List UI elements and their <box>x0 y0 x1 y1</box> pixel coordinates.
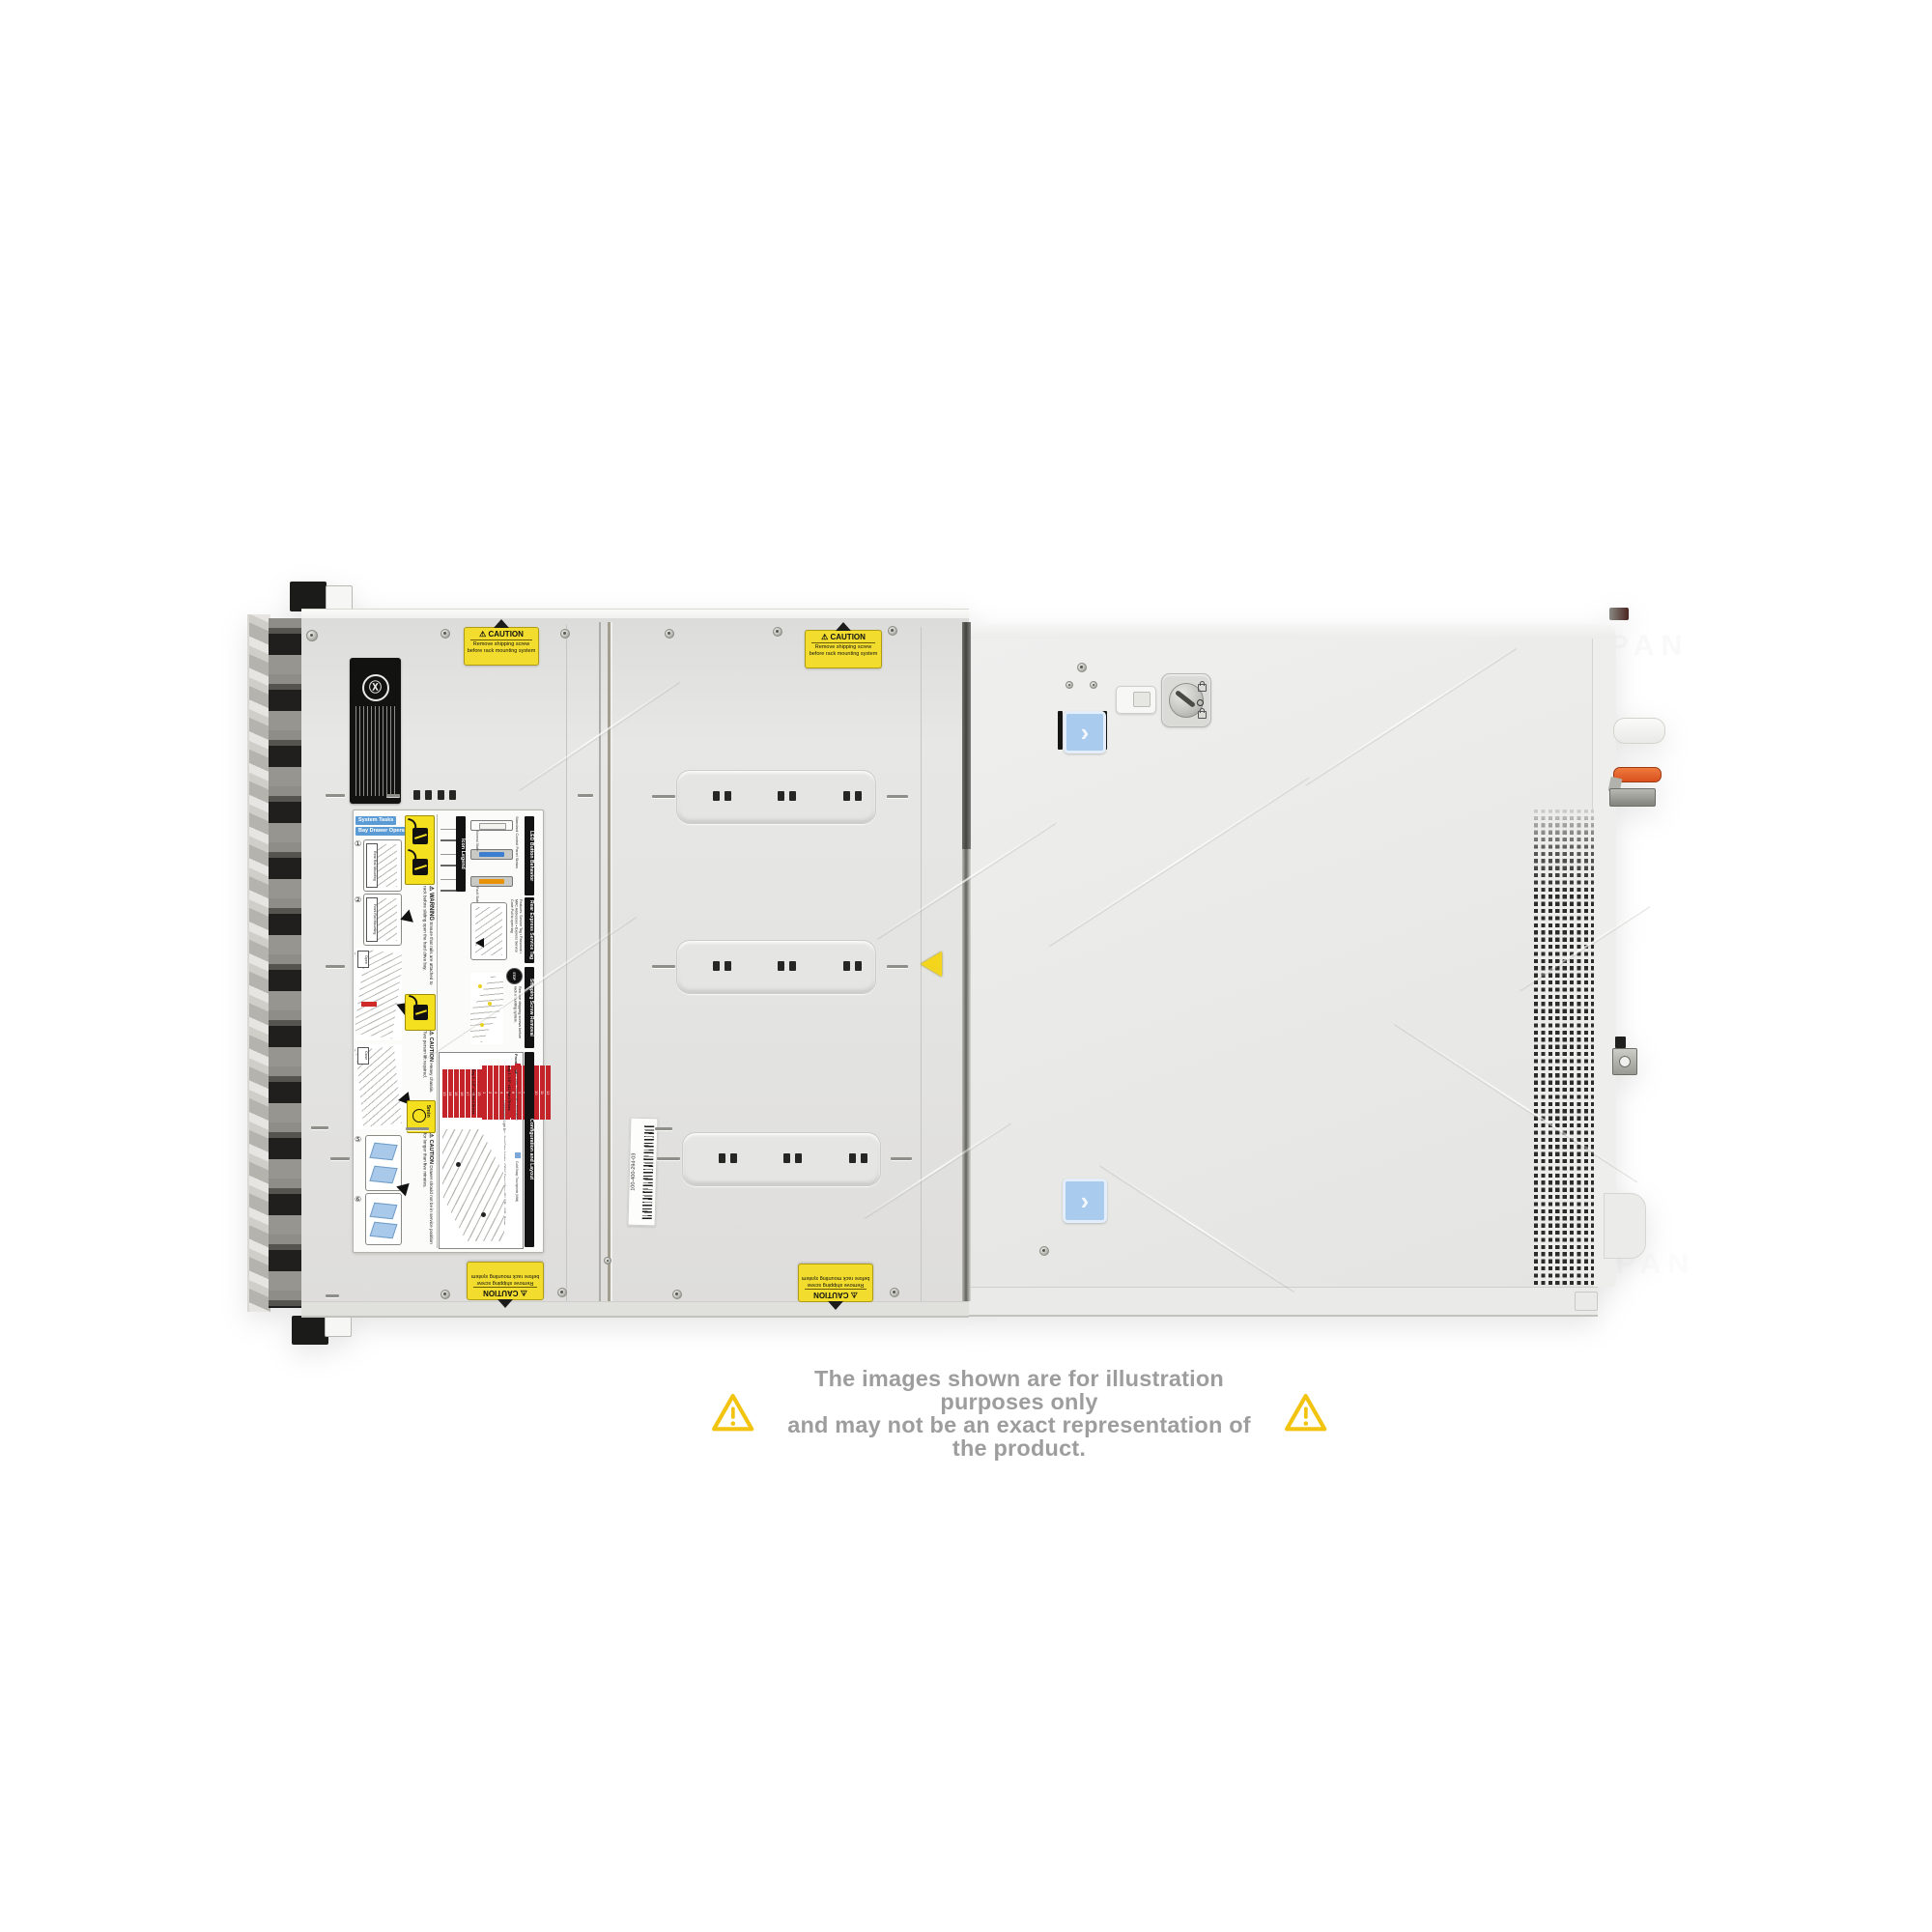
vent-slot-pair <box>413 790 432 800</box>
config-iso-drawing <box>442 1129 504 1241</box>
disclaimer-line-1: The images shown are for illustration pu… <box>773 1367 1264 1413</box>
warning-triangle-icon <box>1283 1387 1328 1439</box>
drive-bay-cell: 10 <box>534 1065 539 1120</box>
config-legend: Hot Swap Touchpoints (Immediate) Cold Sw… <box>514 1064 523 1243</box>
panel-dash-mark <box>657 1157 680 1160</box>
tag-close: Close <box>357 1047 369 1065</box>
led-fault-label: Fault State <box>475 887 479 903</box>
panel-dash-mark <box>887 795 908 798</box>
vent-slot-pair <box>849 1153 867 1163</box>
cover-bottom-fascia <box>969 1287 1598 1317</box>
tag-rear-rail: Rear Rail Mounting <box>366 843 378 888</box>
server-top-view: Ⓧ ⚠ CAUTION Remove shipping screw before… <box>241 575 1671 1357</box>
panel-dash-mark <box>326 965 345 968</box>
screw-dot <box>478 984 482 988</box>
led-header: LED Button Behavior <box>525 816 534 895</box>
illus-slide-open: Open <box>355 948 402 1040</box>
rear-vent-fade <box>1534 810 1594 1285</box>
five-min-text: 5min <box>425 1105 431 1118</box>
disclaimer-line-2: and may not be an exact representation o… <box>773 1413 1264 1460</box>
step-2: ② <box>355 895 361 904</box>
caution-line1: Remove shipping screw <box>806 644 881 651</box>
shipping-header: Shipping Screw Removal <box>525 967 534 1048</box>
stop-icon: STOP <box>506 968 523 984</box>
chevron-right-icon: › <box>1081 1186 1090 1216</box>
legend-hot-label: Hot Swap Touchpoints (Immediate) <box>515 1072 519 1121</box>
bay1-caption: Bay 1: 3.5" x12 Hard Drives <box>507 1065 511 1111</box>
caution-title: ⚠ CAUTION <box>805 1289 867 1299</box>
disclaimer-text: The images shown are for illustration pu… <box>773 1367 1264 1460</box>
vent-slot-pair <box>778 791 796 801</box>
caution-line1: Remove shipping screw <box>799 1282 872 1289</box>
panel-seam-2 <box>599 622 601 1301</box>
vent-slot-pair <box>719 1153 737 1163</box>
screw-hole <box>557 1288 567 1297</box>
caution-line2: before rack mounting system <box>468 1273 543 1280</box>
illus-front-rail: Front Rail Mounting <box>363 894 402 946</box>
caution-line1: Remove shipping screw <box>465 641 538 648</box>
pinch-hazard-icon <box>413 1005 428 1020</box>
rear-tag-illustration <box>470 902 507 960</box>
vent-slot-pair <box>778 961 796 971</box>
rear-vent-grid <box>1534 810 1594 1285</box>
bay2-caption: Bay 2: 3.5" x12 Hard Drives <box>471 1069 475 1115</box>
caution-line2: before rack mounting system <box>806 651 881 658</box>
unlock-icon <box>1198 684 1207 692</box>
icon-legend-header: Icon Legend <box>456 816 466 892</box>
panel-dash-mark <box>891 1157 912 1160</box>
touchpoint-dot <box>456 1162 461 1167</box>
panel-dash-mark <box>326 794 345 797</box>
led-bar-normal <box>470 820 513 831</box>
pinch-hazard-label-1 <box>405 815 435 885</box>
cover-release-touchpoint-2: › <box>1063 1179 1107 1223</box>
barcode-number: 100-400-294-03 <box>630 1119 642 1225</box>
cover-slider-latch <box>1116 686 1156 714</box>
drive-bay-cell: 11 <box>540 1065 545 1120</box>
legend-cold-swatch <box>515 1152 521 1158</box>
icon-legend-icons <box>440 816 456 892</box>
caution-sticker-bottom-middle: ⚠ CAUTION Remove shipping screw before r… <box>798 1264 873 1302</box>
rack-ear-top <box>290 582 327 611</box>
illus-blue-panel <box>370 1203 398 1220</box>
illus-blue-panel <box>369 1143 397 1161</box>
caution-title: ⚠ CAUTION <box>811 633 875 643</box>
bay2-drive-table: 131415161718192021222324 <box>442 1069 469 1118</box>
vent-slot-pair <box>713 961 731 971</box>
rear-tab <box>1604 1193 1646 1259</box>
panel-dash-mark <box>326 1294 339 1297</box>
step-5: ⑤ <box>355 1135 361 1144</box>
vent-slot-pair <box>713 791 731 801</box>
illus-blue-panel <box>370 1222 398 1239</box>
caution-heavy-block: ⚠ CAUTION Heavy chassis. Two person lift… <box>407 1031 434 1098</box>
screw-hole <box>440 1290 450 1299</box>
caution-title: ⚠ CAUTION <box>470 630 532 640</box>
clock-icon <box>412 1109 426 1122</box>
rear-mid-latch <box>1612 1048 1637 1075</box>
screw-hole <box>773 627 782 637</box>
warning-title: ⚠ WARNING <box>428 886 434 921</box>
caution-drawer-block: ⚠ CAUTION Drawer should not be in servic… <box>407 1133 434 1249</box>
cover-keylock-pad <box>1161 673 1211 727</box>
led-fault-fill <box>479 879 505 884</box>
barcode-sticker: 100-400-294-03 <box>628 1118 659 1227</box>
panel-dash-mark <box>406 1127 429 1130</box>
vent-slot-pair <box>438 790 456 800</box>
chip-system-tasks: System Tasks <box>355 816 396 825</box>
illus-slide-step: Close <box>355 1044 402 1129</box>
step-1: ① <box>355 839 361 848</box>
disclaimer-banner: The images shown are for illustration pu… <box>710 1367 1328 1460</box>
panel-dash-mark <box>311 1126 328 1129</box>
drawer-cover-gap-dark <box>962 622 971 849</box>
screw-hole <box>440 629 450 639</box>
drive-bay-cell: 17 <box>466 1069 470 1118</box>
vent-slot-pair <box>843 961 862 971</box>
caution-sticker-top-left: ⚠ CAUTION Remove shipping screw before r… <box>464 627 539 666</box>
caution-drawer-title: ⚠ CAUTION <box>428 1133 434 1164</box>
screw-dot <box>480 1023 484 1027</box>
screw-hole <box>1065 681 1073 689</box>
tag-front-rail: Front Rail Mounting <box>366 897 378 942</box>
drive-bay-cell: 14 <box>448 1069 453 1118</box>
panel-dash-mark <box>330 1157 350 1160</box>
rear-handle <box>1613 718 1665 744</box>
rear-latch-bracket <box>1609 788 1656 807</box>
illus-drawer-blue-2 <box>365 1193 402 1245</box>
drive-bay-cell: 12 <box>546 1065 551 1120</box>
service-instruction-label: System Tasks Bay Drawer Operation ① ② ③ … <box>353 810 544 1253</box>
caution-title: ⚠ CAUTION <box>473 1287 537 1297</box>
rear-tag-header: Rear Express Service Tag <box>525 897 534 963</box>
rear-corner-nub <box>1609 608 1629 620</box>
warning-text-block: ⚠ WARNING Ensure that rails are attached… <box>405 886 434 992</box>
panel-dash-mark <box>578 794 593 797</box>
screw-hole <box>665 629 674 639</box>
drive-bay-cell: 1 <box>482 1065 487 1120</box>
label-divider <box>437 814 438 1248</box>
panel-dash-mark <box>386 794 400 797</box>
step-6: ⑥ <box>355 1195 361 1204</box>
legend-cold-label: Cold Swap Touchpoints (Mild) <box>515 1161 519 1202</box>
product-photo-canvas: { "watermark": { "text": "COMPAN" }, "di… <box>0 0 1932 1932</box>
cover-release-touchpoint-1: › <box>1064 711 1106 753</box>
led-normal-fill <box>479 823 507 830</box>
caution-heavy-title: ⚠ CAUTION <box>428 1031 434 1062</box>
panel-dash-mark <box>655 1127 672 1130</box>
screw-dot <box>488 1002 492 1006</box>
led-subtitle: Standard Control Panel Status <box>515 816 520 868</box>
caution-line2: before rack mounting system <box>799 1275 872 1282</box>
led-bar-fault <box>470 876 513 887</box>
led-blue-fill <box>479 852 505 857</box>
latch-slot-bar-left <box>1058 711 1063 750</box>
warning-triangle-sticker <box>921 952 942 977</box>
screw-hole <box>604 1257 611 1264</box>
pinch-hazard-icon <box>412 828 428 844</box>
config-header: Configuration and Layout <box>525 1052 534 1247</box>
illus-rear-rail: Rear Rail Mounting <box>363 839 402 892</box>
front-drive-handles-outer <box>247 614 270 1312</box>
illus-lines <box>475 907 502 955</box>
vent-slot-pair <box>843 791 862 801</box>
led-normal-label: Normal State <box>475 831 479 851</box>
rear-mid-latch-screw <box>1619 1056 1631 1067</box>
drive-bay-cell: 16 <box>460 1069 465 1118</box>
screw-hole <box>306 630 318 641</box>
panel-dash-mark <box>652 795 675 798</box>
illus-lines <box>442 1129 504 1241</box>
drive-bay-cell: 15 <box>454 1069 459 1118</box>
panel-seam-3 <box>608 622 611 1301</box>
tag-open: Open <box>357 951 369 968</box>
legend-hot-swatch <box>515 1064 521 1069</box>
illus-red-mark <box>361 1002 377 1007</box>
fascia-notch <box>1575 1292 1598 1311</box>
drive-bay-cell: 13 <box>442 1069 447 1118</box>
rack-ear-bottom <box>292 1316 328 1345</box>
caution-line2: before rack mounting system <box>465 648 538 655</box>
rear-mid-clip-black <box>1615 1037 1626 1048</box>
pinch-hazard-label-2 <box>405 994 436 1031</box>
regulatory-fine-print <box>355 706 395 796</box>
illus-blue-panel <box>369 1166 397 1184</box>
regulatory-label: Ⓧ <box>350 658 401 804</box>
keylock-dot <box>1197 699 1204 706</box>
screw-hole <box>890 1288 899 1297</box>
panel-dash-mark <box>887 965 908 968</box>
screw-hole <box>1090 681 1097 689</box>
drive-bay-cell: 2 <box>488 1065 493 1120</box>
screw-hole <box>560 629 570 639</box>
caution-sticker-top-middle: ⚠ CAUTION Remove shipping screw before r… <box>805 630 882 668</box>
screw-hole <box>888 626 897 636</box>
regulatory-mark-icon: Ⓧ <box>362 674 389 701</box>
screw-hole <box>672 1290 682 1299</box>
cover-top-edge <box>969 624 1615 639</box>
screw-hole <box>1039 1246 1049 1256</box>
screw-hole <box>1077 663 1087 672</box>
lock-icon <box>1198 711 1207 719</box>
vent-slot-pair <box>783 1153 802 1163</box>
pinch-hazard-icon <box>412 859 428 875</box>
barcode-stripes <box>642 1124 655 1219</box>
caution-sticker-bottom-left: ⚠ CAUTION Remove shipping screw before r… <box>467 1262 544 1300</box>
front-drive-bays <box>269 618 301 1308</box>
rear-side-rail <box>1592 639 1616 1287</box>
panel-dash-mark <box>652 965 675 968</box>
warning-triangle-icon <box>710 1387 755 1439</box>
chevron-right-icon: › <box>1081 718 1090 748</box>
rear-tag-features: Features: Service Tag • Password • MAC A… <box>507 899 523 961</box>
caution-line1: Remove shipping screw <box>468 1280 543 1287</box>
drawer-bottom-fascia <box>301 1301 969 1318</box>
illus-arrow <box>475 938 484 948</box>
touchpoint-dot <box>481 1212 486 1217</box>
